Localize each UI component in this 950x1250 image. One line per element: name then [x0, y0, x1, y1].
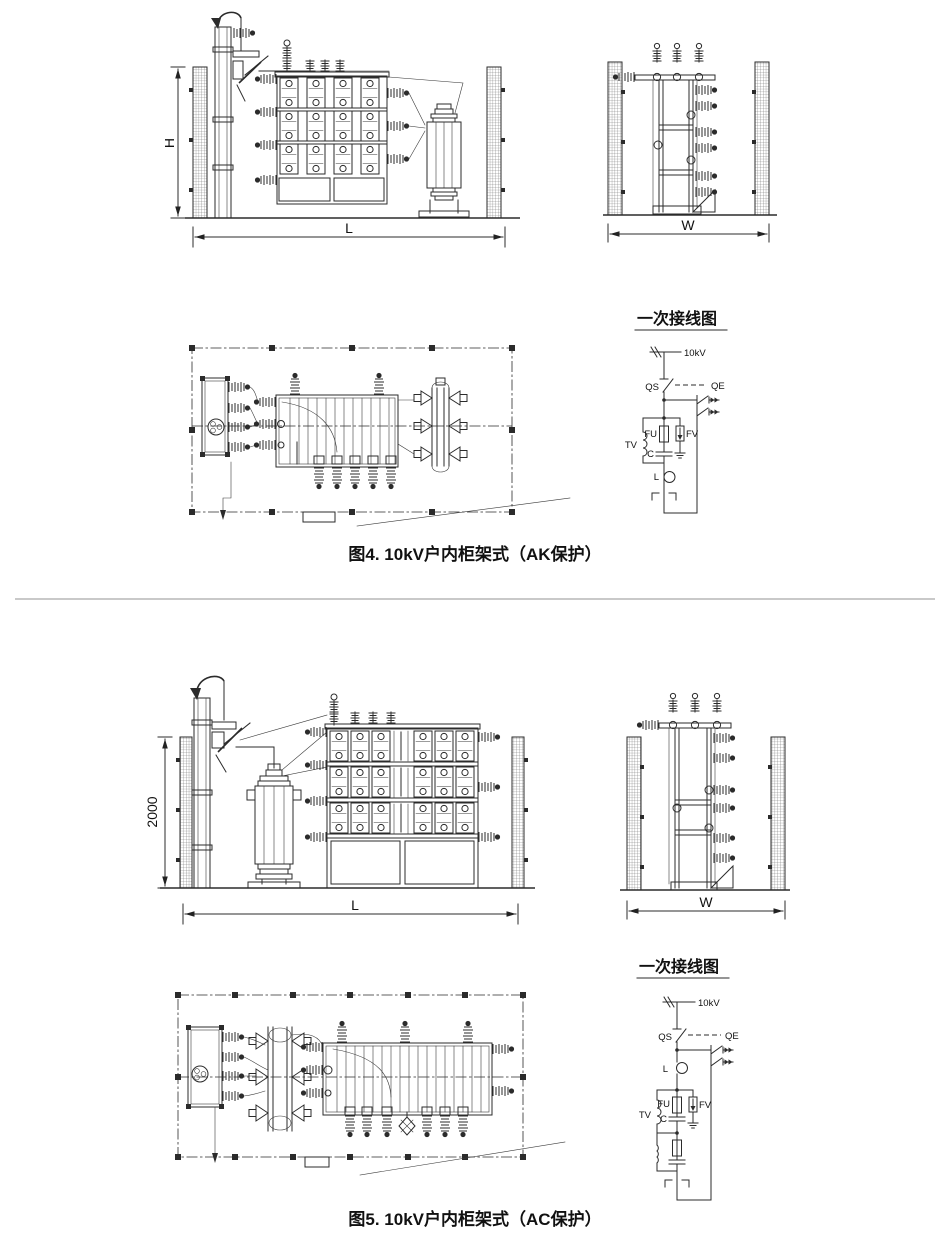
fig5-l-label: L [663, 1064, 668, 1075]
fig4-width-dimension: W [608, 217, 769, 242]
fig5-length-dimension: L [183, 897, 518, 924]
fig4-plan-rack [254, 373, 398, 489]
leader-line [360, 1142, 565, 1175]
fig5-plan-view-drawing [175, 985, 575, 1185]
fig5-side-fences [627, 737, 785, 890]
fig5-qs-label: QS [658, 1032, 672, 1043]
fig4-bus-label: 10kV [684, 348, 706, 359]
fig4-schematic-title: 一次接线图 [637, 309, 717, 328]
connection-lines [250, 387, 258, 447]
fig5-side-view-drawing: W [615, 680, 795, 925]
fig4-side-structure [613, 43, 717, 214]
fig4-tv-label: TV [625, 440, 638, 451]
fig4-height-label: H [165, 138, 177, 148]
fence-gate-notch [303, 512, 335, 522]
fig5-qe-label: QE [725, 1031, 739, 1042]
fig5-left-fence [176, 737, 192, 888]
fig4-qs-label: QS [645, 382, 659, 393]
fig4-reactor [419, 104, 469, 217]
fig4-fv-label: FV [686, 429, 699, 440]
fig4-left-fence [189, 67, 207, 218]
fence-gate-notch [305, 1157, 329, 1167]
fig5-schematic: 一次接线图 10kV QS QE L TV FU C FV [615, 950, 815, 1215]
fig4-right-fence [487, 67, 505, 218]
fig4-length-label: L [345, 220, 353, 236]
fig4-c-label: C [647, 449, 654, 460]
fig5-c-label: C [660, 1114, 667, 1125]
fig4-l-label: L [654, 472, 659, 483]
fig5-height-label: 2000 [144, 796, 160, 827]
fig4-plan-disconnector-frame [200, 376, 250, 520]
fig5-reactor [247, 764, 301, 888]
fig4-caption: 图4. 10kV户内柜架式（AK保护） [0, 540, 950, 565]
fig4-side-view-drawing: W [595, 30, 785, 250]
fig5-width-dimension: W [627, 894, 785, 919]
fig5-caption: 图5. 10kV户内柜架式（AC保护） [0, 1205, 950, 1230]
fig5-plan-rack [301, 1021, 514, 1137]
section-divider [15, 598, 935, 600]
fig5-fv-label: FV [699, 1100, 712, 1111]
fig4-capacitor-rack [255, 40, 425, 204]
fig5-bus-label: 10kV [698, 998, 720, 1009]
fig4-plan-view-drawing [185, 340, 585, 535]
fig4-support-pole [211, 12, 255, 218]
fig5-schematic-title: 一次接线图 [639, 957, 719, 976]
fig4-width-label: W [681, 217, 695, 233]
fig4-schematic: 一次接线图 10kV QS QE TV FU C FV L [615, 300, 805, 535]
fig5-plan-disconnector-frame [186, 1025, 244, 1163]
fig4-height-dimension: H [165, 67, 185, 218]
fig4-circuit: 10kV QS QE TV FU C FV L [625, 347, 725, 513]
fig5-right-fence [512, 737, 528, 888]
fig5-width-label: W [699, 894, 713, 910]
fig5-tv-label: TV [639, 1110, 652, 1121]
fig4-front-view-drawing: H [165, 5, 525, 255]
fig5-circuit: 10kV QS QE L TV FU C FV [639, 997, 739, 1200]
fig4-qe-label: QE [711, 381, 725, 392]
catalog-page: H [0, 0, 950, 1250]
fig5-disconnector-assembly [212, 715, 327, 776]
fig5-capacitor-rack [305, 694, 500, 888]
fig5-side-structure [637, 693, 735, 890]
fig5-height-dimension: 2000 [144, 737, 172, 888]
fig5-front-view-drawing: 2000 [130, 660, 550, 940]
fig4-fu-label: FU [644, 429, 657, 440]
fig4-plan-reactor [398, 378, 467, 472]
fig5-length-label: L [351, 897, 359, 913]
fig4-length-dimension: L [193, 220, 505, 247]
fig5-support-pole [190, 676, 224, 888]
fig5-fu-label: FU [657, 1099, 670, 1110]
